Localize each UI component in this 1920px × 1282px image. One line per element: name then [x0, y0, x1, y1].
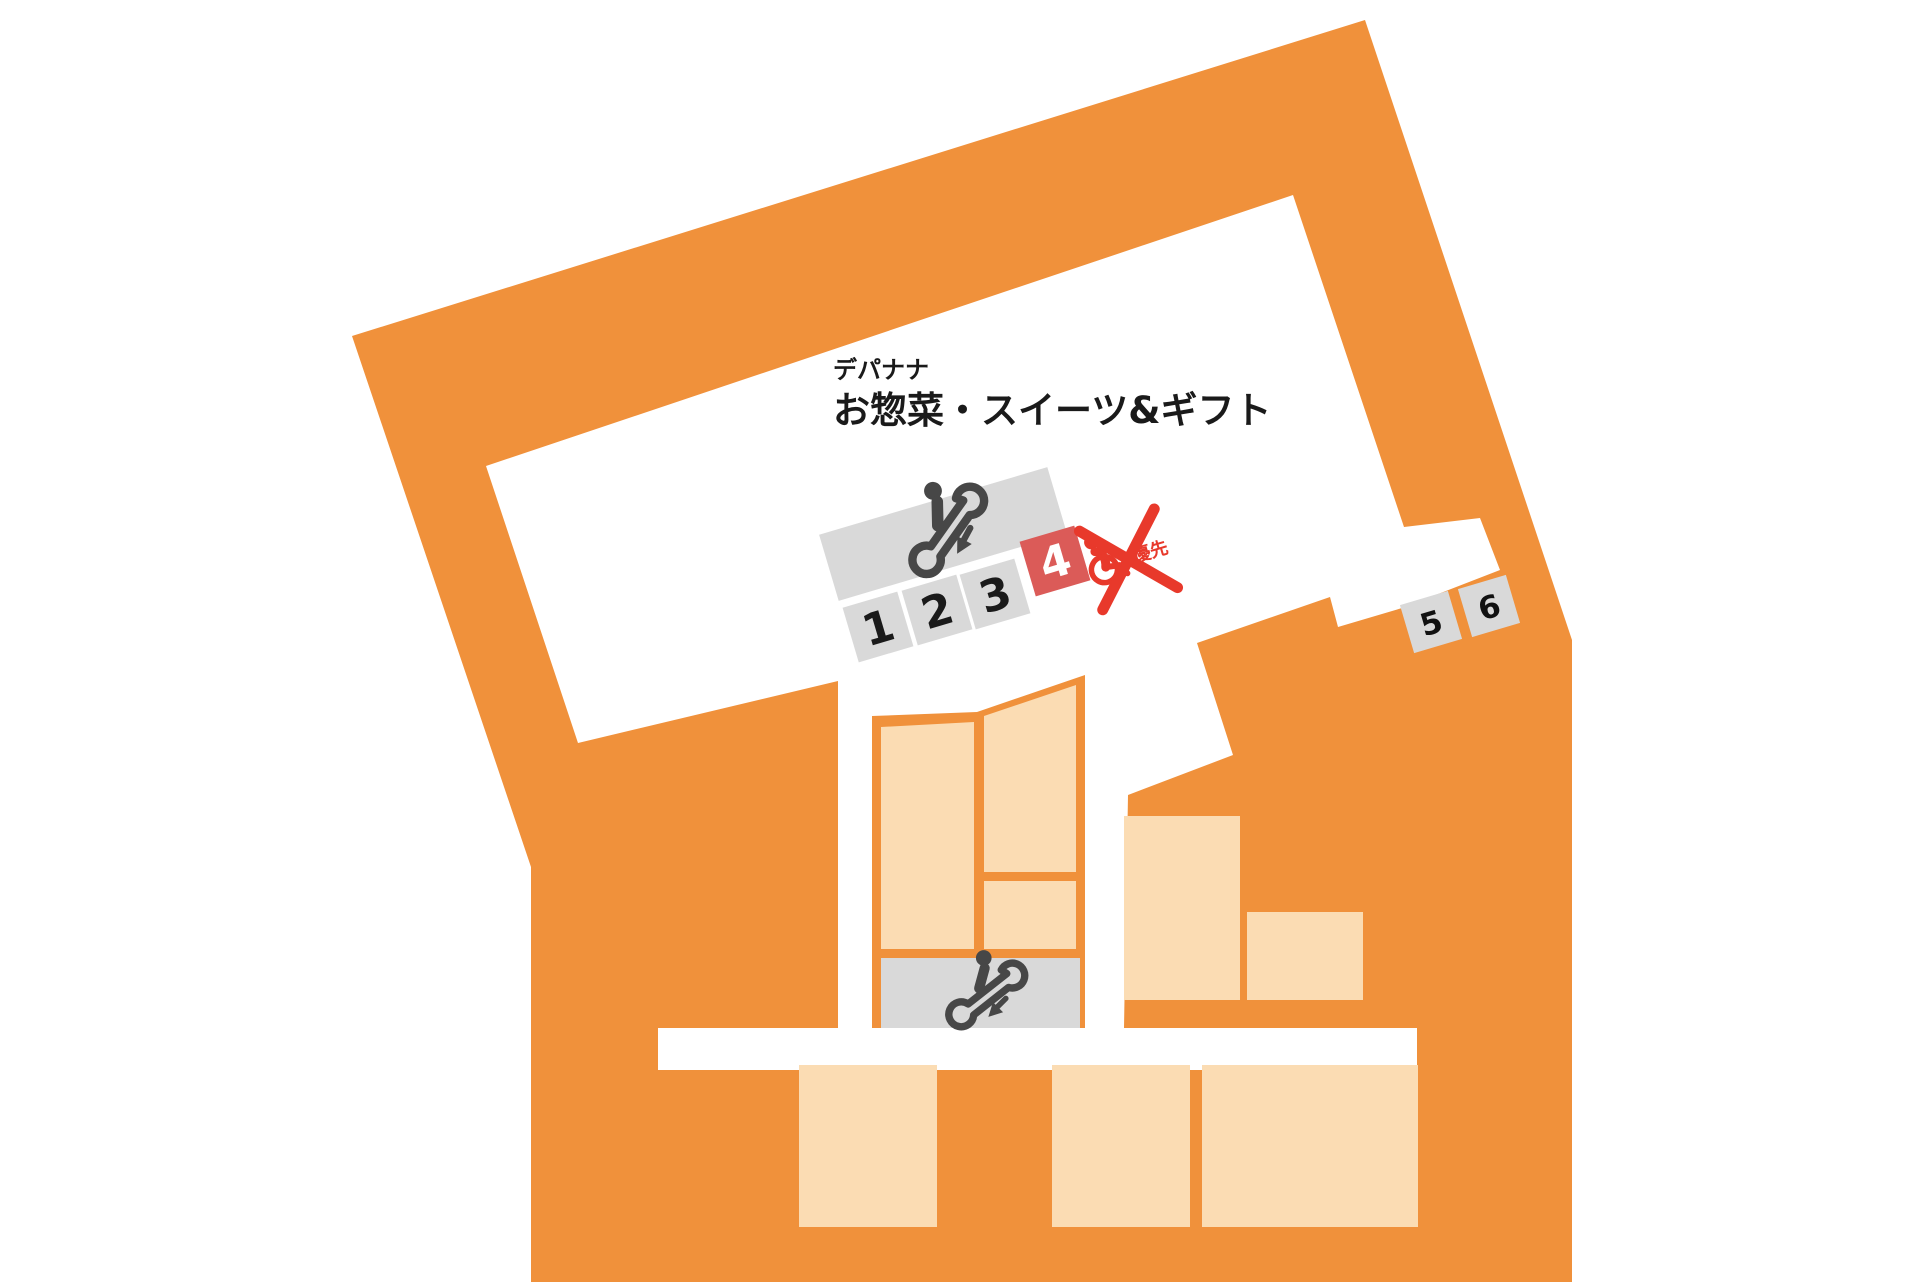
room-bottom-left: [799, 1065, 937, 1227]
floor-map-page: 1 2 3 4 5 6 優先 デパナナ お惣菜・スイーツ&ギフト: [0, 0, 1920, 1282]
room-step-tall: [1124, 816, 1240, 1000]
floor-map-canvas: 1 2 3 4 5 6 優先 デパナナ お惣菜・スイーツ&ギフト: [0, 0, 1920, 1282]
room-middle-right-bottom: [984, 881, 1076, 949]
room-middle-right-top: [984, 685, 1076, 872]
room-bottom-middle: [1052, 1065, 1190, 1227]
room-step-short: [1247, 912, 1363, 1000]
room-middle-left: [881, 722, 974, 949]
room-bottom-right: [1202, 1065, 1418, 1227]
floor-title: お惣菜・スイーツ&ギフト: [833, 389, 1272, 432]
store-name: デパナナ: [833, 356, 929, 384]
